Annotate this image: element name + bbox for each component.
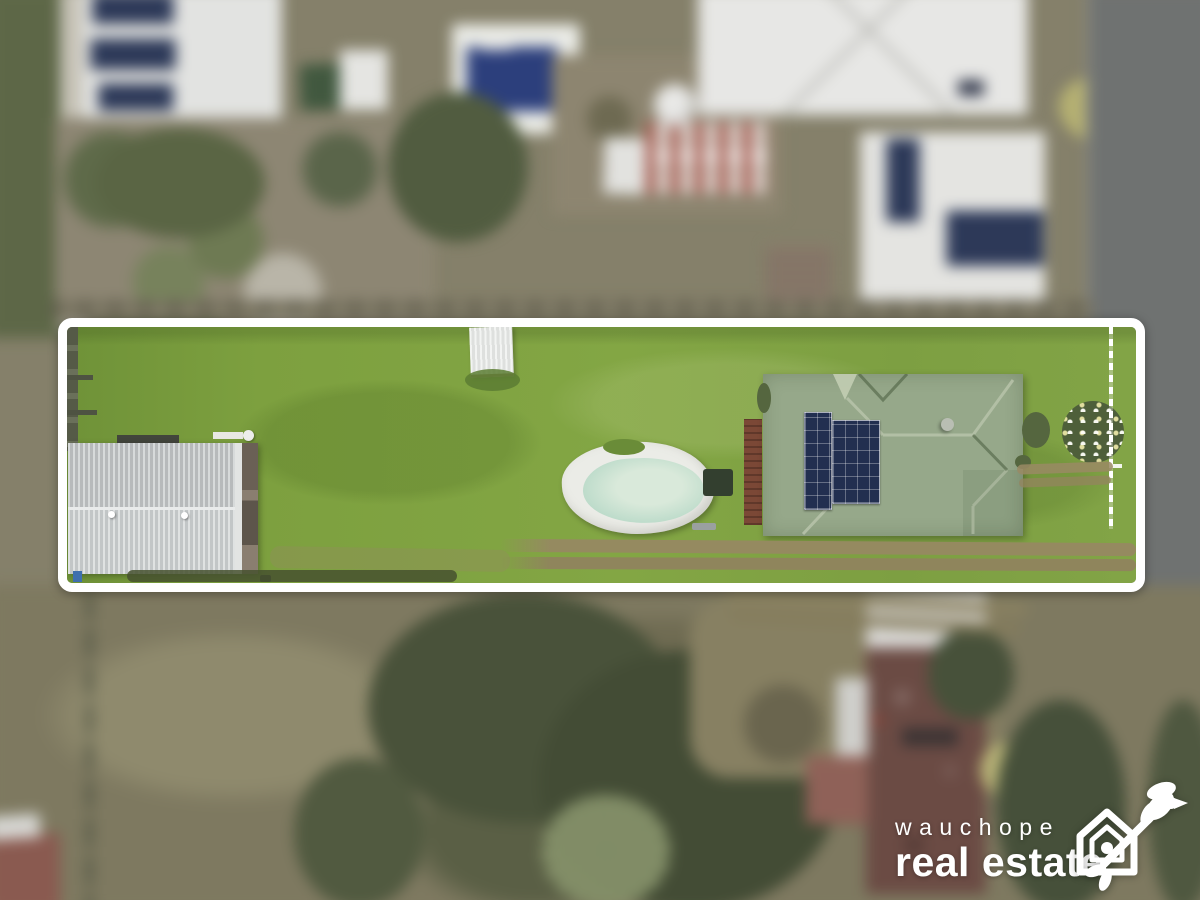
bg-fence-row-above-lot bbox=[52, 300, 1092, 318]
bg-nw-solar-array-1 bbox=[92, 0, 174, 24]
garage-ridge-cap bbox=[68, 507, 258, 510]
blue-bin bbox=[73, 571, 82, 582]
property-lot bbox=[67, 327, 1136, 583]
bg-tree-mid bbox=[388, 92, 528, 242]
picket-fence bbox=[1109, 327, 1113, 529]
left-fence bbox=[67, 327, 78, 451]
solar-array-column bbox=[804, 412, 832, 510]
bg-palm-tree bbox=[542, 795, 670, 900]
bg-satellite-dish bbox=[654, 84, 696, 126]
pool-grass-tuft bbox=[603, 439, 645, 455]
house-with-bird-logo-icon bbox=[1068, 772, 1196, 896]
house-roof-ridges bbox=[763, 374, 1023, 536]
garage-roof-upper-slope bbox=[68, 443, 258, 509]
bg-dark-roof-vent bbox=[902, 728, 958, 746]
garage-items-bench bbox=[117, 435, 179, 443]
garage-roof-vent-2 bbox=[181, 512, 188, 519]
bg-red-dot bbox=[874, 716, 882, 724]
bg-ne2-solar-strip-1 bbox=[886, 138, 920, 222]
garage-roof-vent-1 bbox=[108, 511, 115, 518]
garage-roof-lower-slope bbox=[68, 509, 258, 574]
flowering-shrub bbox=[1062, 401, 1124, 463]
garage-items-plank bbox=[213, 432, 243, 439]
bottom-hedge bbox=[127, 570, 457, 582]
bg-ne1-solar-panel bbox=[958, 80, 984, 96]
bg-nw-solar-array-3 bbox=[98, 83, 174, 111]
shed-garden-patch bbox=[465, 369, 520, 391]
main-house bbox=[763, 374, 1023, 536]
bg-white-shed-b bbox=[603, 137, 647, 194]
garage-veranda-strip bbox=[235, 443, 242, 574]
driveway-track-2 bbox=[500, 557, 1136, 571]
garage-roof bbox=[68, 443, 258, 574]
bg-pool-step bbox=[480, 40, 512, 50]
bg-red-pergola bbox=[646, 122, 768, 194]
garage-veranda-shadow bbox=[242, 443, 258, 574]
bg-nw-solar-array-2 bbox=[90, 38, 176, 70]
bg-fence-line-bottom-left bbox=[86, 592, 93, 900]
bg-tree-top-left bbox=[95, 128, 265, 238]
satellite-dish bbox=[243, 430, 254, 441]
property-boundary bbox=[58, 318, 1145, 592]
shrub-left-of-house bbox=[757, 383, 771, 413]
bg-red-roof-bottom-left bbox=[0, 833, 60, 900]
fence-cross-rail-2 bbox=[67, 410, 97, 415]
bg-green-shade-structure bbox=[299, 63, 345, 111]
bg-white-shed-a bbox=[340, 50, 388, 110]
roof-vent bbox=[941, 418, 954, 431]
fence-cross-rail-1 bbox=[67, 375, 93, 380]
dark-ground-mat bbox=[703, 469, 733, 496]
bg-ne2-solar-strip-2 bbox=[946, 210, 1044, 266]
bg-dark-shrub-1 bbox=[928, 628, 1014, 720]
bg-neighbor-house-ne-1 bbox=[698, 0, 1028, 116]
aerial-photo: wauchope real estate bbox=[0, 0, 1200, 900]
bg-white-strip-bottom-left bbox=[0, 813, 41, 841]
solar-array-block bbox=[832, 420, 880, 504]
timber-deck bbox=[744, 419, 762, 525]
pool-pump bbox=[692, 523, 716, 530]
shrub-right-of-house-1 bbox=[1022, 412, 1050, 448]
bg-tree-mass-3 bbox=[294, 758, 424, 900]
bg-red-deck bbox=[806, 756, 868, 824]
bg-white-section bbox=[836, 678, 868, 764]
driveway-track-faint bbox=[270, 546, 510, 572]
